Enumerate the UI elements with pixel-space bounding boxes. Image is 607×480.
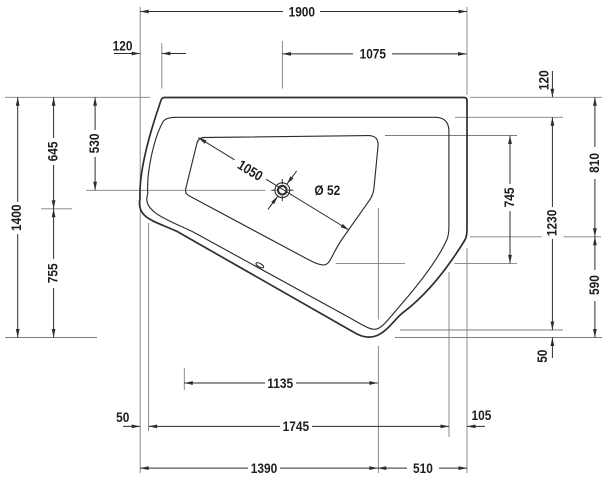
svg-text:Ø 52: Ø 52	[314, 182, 340, 198]
svg-text:745: 745	[501, 187, 517, 207]
svg-text:530: 530	[86, 133, 102, 153]
svg-text:1745: 1745	[283, 418, 309, 434]
svg-text:120: 120	[113, 37, 133, 53]
svg-text:510: 510	[413, 460, 433, 476]
svg-text:50: 50	[116, 409, 129, 425]
svg-text:1400: 1400	[8, 205, 24, 231]
svg-text:810: 810	[586, 153, 602, 173]
svg-text:1135: 1135	[267, 375, 293, 391]
svg-text:120: 120	[535, 70, 551, 90]
svg-text:1075: 1075	[360, 46, 386, 62]
svg-text:590: 590	[586, 275, 602, 295]
svg-text:1050: 1050	[235, 157, 266, 185]
svg-text:1900: 1900	[289, 3, 315, 19]
svg-text:50: 50	[534, 350, 550, 363]
svg-text:755: 755	[45, 263, 61, 283]
svg-text:105: 105	[471, 407, 491, 423]
svg-text:1230: 1230	[544, 210, 560, 236]
svg-text:645: 645	[45, 141, 61, 161]
svg-text:1390: 1390	[251, 460, 277, 476]
